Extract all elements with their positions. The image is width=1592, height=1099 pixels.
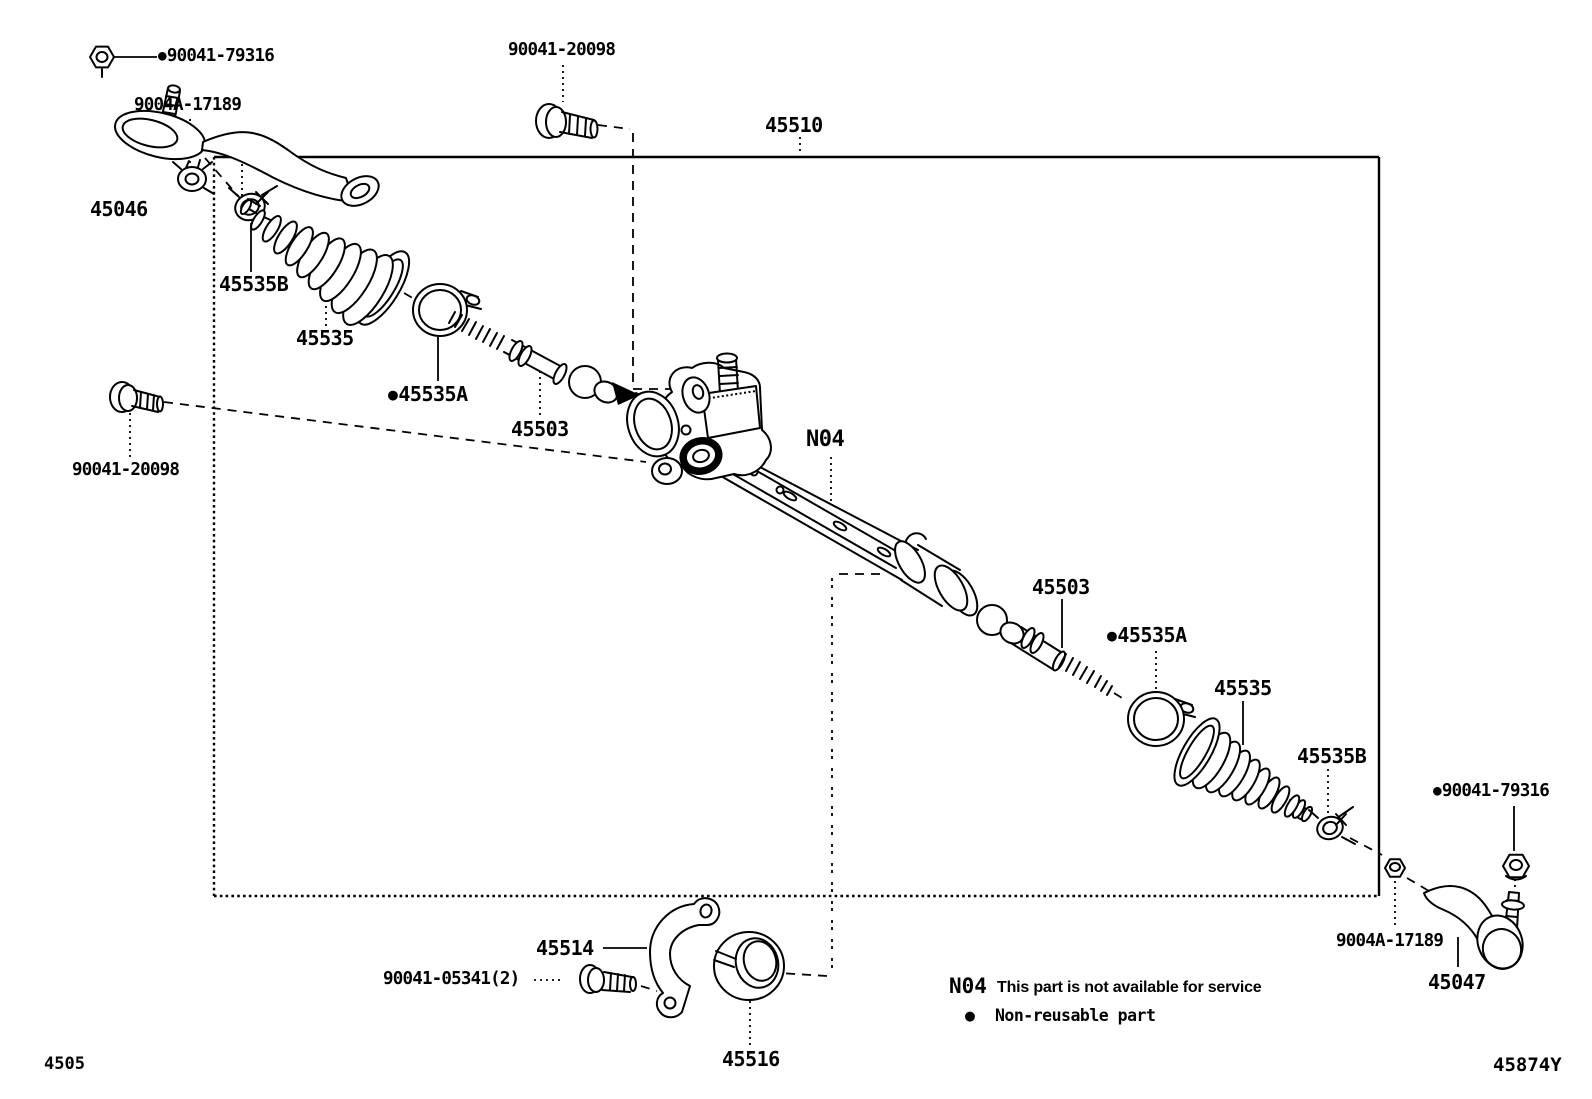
callout-45503-right: 45503	[1032, 577, 1090, 597]
callout-90041-79316-left: ●90041-79316	[158, 48, 274, 66]
bracket-art	[650, 898, 719, 1017]
callout-9004A-17189-left: 9004A-17189	[134, 97, 241, 115]
callout-45535-left: 45535	[296, 328, 354, 348]
callout-90041-79316-right: ●90041-79316	[1433, 783, 1549, 801]
parts-diagram: ●90041-79316 9004A-17189 45046 90041-200…	[0, 0, 1592, 1099]
sheet-code: 45874Y	[1493, 1054, 1562, 1076]
callout-90041-20098-top: 90041-20098	[508, 42, 615, 60]
non-reusable-bullet: ●	[1107, 626, 1116, 645]
inner-rod-left-art	[449, 312, 650, 407]
callout-45535A-left: ●45535A	[388, 384, 468, 404]
callout-45535-right: 45535	[1214, 678, 1272, 698]
callout-45047: 45047	[1428, 972, 1486, 992]
callout-45535B-left: 45535B	[219, 274, 288, 294]
bolt-left-art	[110, 382, 163, 412]
rack-housing-art	[619, 354, 984, 621]
non-reusable-bullet: ●	[388, 385, 397, 404]
callout-N04: N04	[806, 429, 844, 451]
callout-45516: 45516	[722, 1049, 780, 1069]
callout-45514: 45514	[536, 938, 594, 958]
legend-bullet-text: Non-reusable part	[995, 1006, 1155, 1025]
non-reusable-bullet: ●	[1433, 783, 1441, 799]
bolt-top-art	[536, 104, 598, 138]
callout-45510: 45510	[765, 115, 823, 135]
boot-clamp-right-art	[1309, 807, 1355, 844]
boot-clip-left-art	[413, 284, 481, 336]
legend-bullet-icon: ●	[965, 1006, 974, 1025]
callout-45535B-right: 45535B	[1297, 746, 1366, 766]
bracket-bolt-art	[580, 965, 636, 993]
callout-45503-left: 45503	[511, 419, 569, 439]
callout-9004A-17189-right: 9004A-17189	[1336, 933, 1443, 951]
tie-rod-end-left-art	[90, 47, 384, 212]
callout-90041-05341: 90041-05341(2)	[383, 971, 519, 989]
callout-45535A-right: ●45535A	[1107, 625, 1187, 645]
callout-45046: 45046	[90, 199, 148, 219]
boot-clip-right-art	[1128, 692, 1195, 746]
bushing-art	[714, 932, 784, 1000]
figure-number: 4505	[44, 1054, 85, 1074]
legend-n04-text: This part is not available for service	[997, 979, 1262, 997]
callout-90041-20098-left: 90041-20098	[72, 462, 179, 480]
legend-n04-code: N04	[949, 974, 987, 998]
non-reusable-bullet: ●	[158, 48, 166, 64]
inner-rod-right-art	[977, 605, 1112, 695]
boot-right-art	[1166, 712, 1314, 823]
